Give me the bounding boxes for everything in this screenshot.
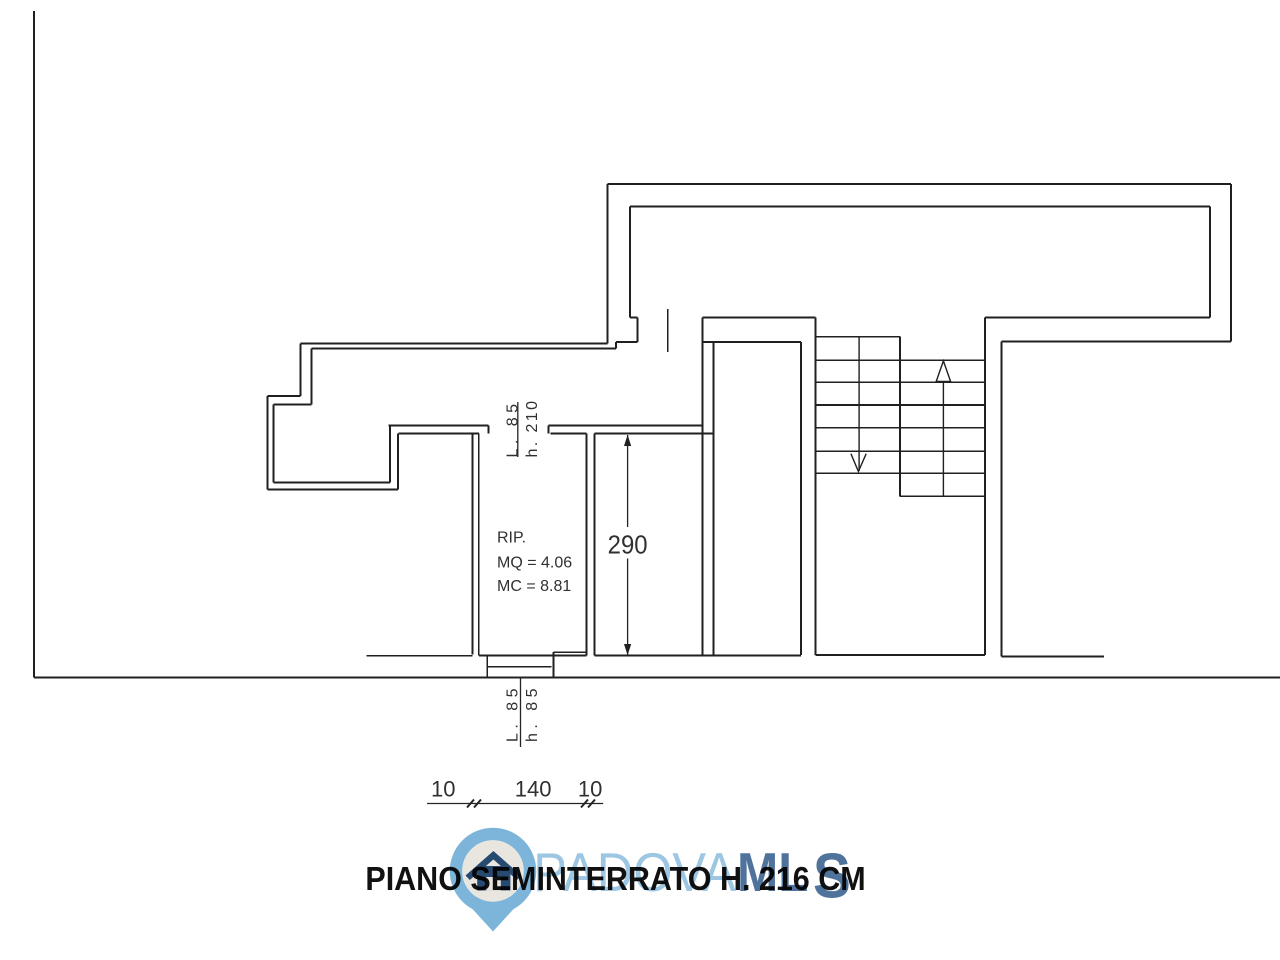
- svg-text:MQ = 4.06: MQ = 4.06: [497, 555, 572, 572]
- svg-text:h. 210: h. 210: [524, 399, 541, 458]
- svg-text:MC = 8.81: MC = 8.81: [497, 578, 571, 595]
- svg-text:PADOVA: PADOVA: [533, 842, 736, 903]
- svg-text:S: S: [813, 841, 851, 911]
- svg-text:RIP.: RIP.: [497, 530, 526, 547]
- svg-text:L. 85: L. 85: [505, 399, 522, 457]
- svg-text:140: 140: [515, 777, 552, 802]
- svg-text:h. 85: h. 85: [524, 684, 541, 742]
- svg-text:ML: ML: [737, 842, 808, 903]
- svg-text:L. 85: L. 85: [505, 684, 522, 742]
- svg-text:10: 10: [578, 777, 602, 802]
- svg-text:10: 10: [431, 777, 455, 802]
- svg-text:290: 290: [608, 531, 648, 560]
